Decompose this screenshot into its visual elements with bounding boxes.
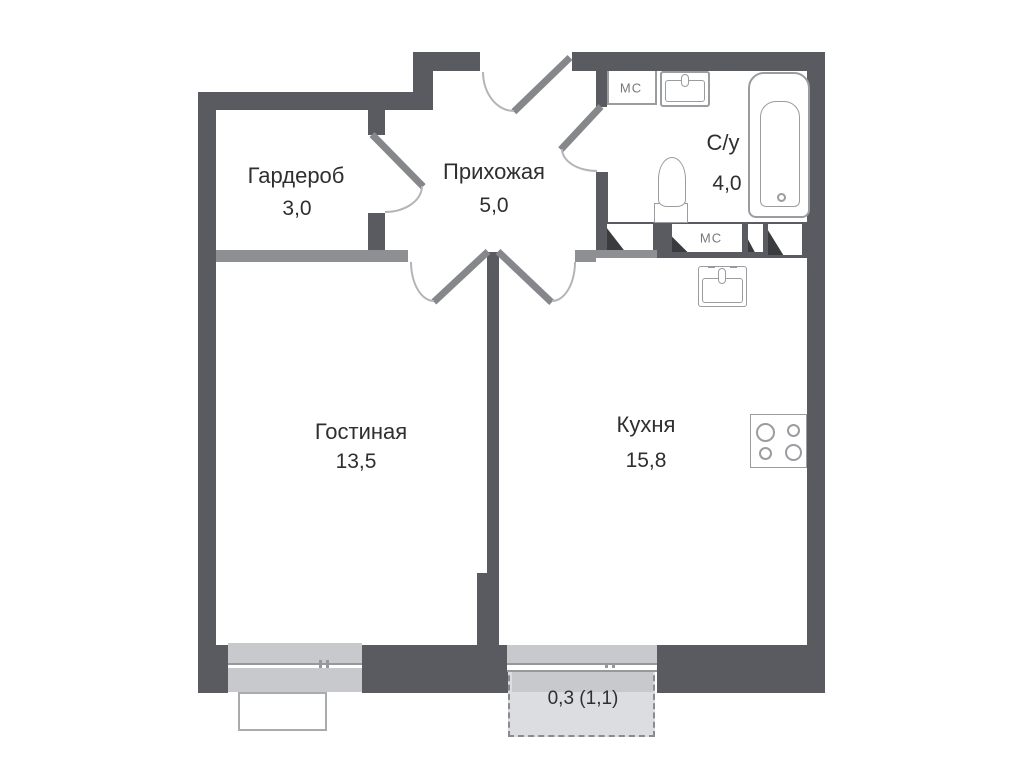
living-window-sill-inner	[228, 643, 362, 663]
balcony-window	[507, 663, 657, 672]
hall-wall-right	[575, 250, 596, 262]
room-partition-wide	[477, 573, 499, 649]
living-window-sill-outer	[228, 668, 362, 692]
room-label-hallway: Прихожая	[443, 159, 545, 185]
wall-bottom-middle	[362, 645, 510, 693]
stove-burner-icon	[787, 424, 800, 437]
wardrobe-door-arc	[385, 186, 423, 213]
floor-plan: Гардероб 3,0 Прихожая 5,0 С/у 4,0 Гостин…	[0, 0, 1024, 768]
vent-shaft-cell	[607, 224, 653, 252]
wall-top-hall	[413, 52, 480, 71]
kitchen-faucet-icon	[718, 268, 726, 284]
vent-duct-light-strip	[596, 250, 657, 258]
bathroom-faucet-icon	[681, 74, 689, 87]
living-room-door-arc	[410, 262, 434, 302]
vent-flag-icon	[768, 224, 802, 255]
stove-burner-icon	[759, 447, 772, 460]
wall-left	[198, 92, 216, 692]
stove	[750, 414, 807, 468]
toilet-bowl	[658, 157, 686, 207]
room-area-kitchen: 15,8	[626, 449, 667, 473]
kitchen-door-arc	[552, 262, 576, 302]
kitchen-sink-tick	[708, 266, 715, 268]
room-label-bathroom: С/у	[707, 130, 740, 156]
living-room-door-leaf	[431, 249, 490, 305]
bathtub-drain-icon	[777, 193, 786, 202]
entrance-door-leaf	[511, 55, 572, 114]
wardrobe-partition-top	[368, 107, 385, 135]
bathtub	[748, 72, 810, 218]
bathroom-door-arc	[561, 149, 597, 172]
room-label-wardrobe: Гардероб	[248, 163, 345, 189]
vent-flag-icon	[607, 224, 653, 252]
window-ledge	[238, 692, 327, 731]
vent-flag-icon	[748, 224, 763, 252]
wall-top-right	[572, 52, 825, 71]
vent-duct-label: МС	[700, 231, 722, 246]
balcony-area-label: 0,3 (1,1)	[548, 688, 619, 710]
room-label-kitchen: Кухня	[617, 412, 676, 438]
bathroom-wall-upper	[596, 71, 607, 107]
room-area-living-room: 13,5	[336, 450, 377, 474]
living-window-tick	[319, 660, 322, 668]
cabinet-label: МС	[620, 81, 642, 96]
bathroom-sink	[660, 71, 710, 107]
bathtub-inner	[760, 101, 800, 207]
kitchen-sink	[698, 266, 747, 307]
room-label-living-room: Гостиная	[315, 419, 407, 445]
kitchen-sink-tick	[730, 266, 737, 268]
room-area-wardrobe: 3,0	[282, 197, 311, 221]
vent-shaft-cell	[748, 224, 763, 252]
entrance-door-arc	[482, 72, 514, 112]
wall-top-left	[198, 92, 433, 110]
stove-burner-icon	[785, 444, 802, 461]
balcony-window-sill-inner	[507, 645, 657, 663]
room-area-bathroom: 4,0	[712, 172, 741, 196]
wall-bottom-right	[657, 645, 825, 693]
vent-shaft-cell	[768, 224, 802, 255]
room-partition-thin	[487, 252, 499, 573]
bathroom-wall-lower	[596, 172, 608, 226]
hall-wall-left	[216, 250, 408, 262]
bathroom-door-leaf	[558, 104, 603, 152]
living-window-tick	[326, 660, 329, 668]
wall-bottom-left-corner	[198, 645, 228, 693]
stove-burner-icon	[756, 423, 775, 442]
wardrobe-door-leaf	[370, 132, 426, 189]
room-area-hallway: 5,0	[479, 194, 508, 218]
kitchen-door-leaf	[496, 249, 554, 305]
